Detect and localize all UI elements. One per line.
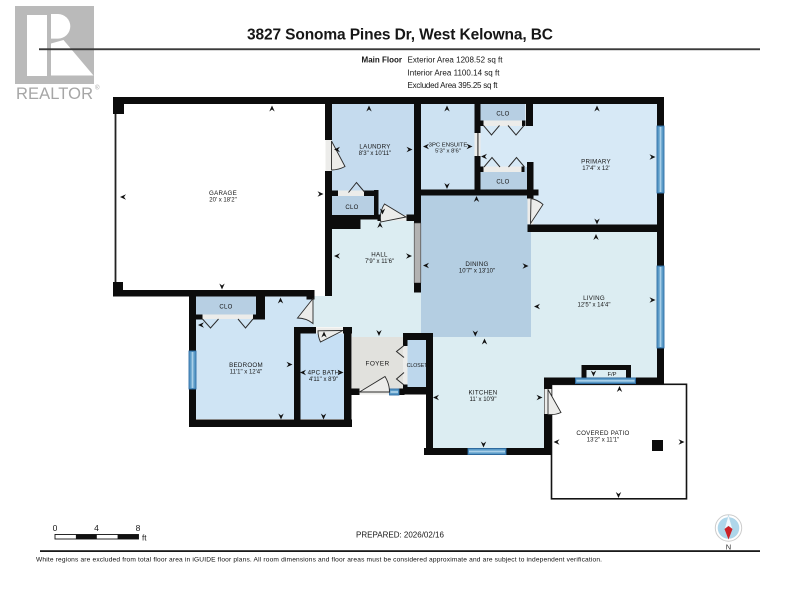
svg-text:13'2" x 11'1": 13'2" x 11'1" — [587, 438, 619, 444]
svg-text:PRIMARY: PRIMARY — [581, 159, 611, 166]
svg-text:4'11" x 8'9": 4'11" x 8'9" — [309, 377, 338, 383]
svg-text:Excluded Area 395.25 sq ft: Excluded Area 395.25 sq ft — [408, 81, 499, 90]
svg-text:BEDROOM: BEDROOM — [229, 362, 263, 369]
svg-text:8'3" x 10'11": 8'3" x 10'11" — [359, 151, 391, 157]
svg-text:11' x 10'9": 11' x 10'9" — [470, 397, 497, 403]
svg-text:4: 4 — [94, 523, 99, 533]
svg-text:5'3" x 8'6": 5'3" x 8'6" — [435, 149, 461, 155]
svg-text:N: N — [726, 543, 731, 552]
svg-text:Interior Area 1100.14 sq ft: Interior Area 1100.14 sq ft — [408, 69, 501, 78]
svg-text:7'9" x 11'6": 7'9" x 11'6" — [365, 259, 394, 265]
svg-text:Exterior Area 1208.52 sq ft: Exterior Area 1208.52 sq ft — [408, 56, 504, 65]
svg-text:CLO: CLO — [345, 205, 358, 211]
svg-text:COVERED PATIO: COVERED PATIO — [576, 430, 629, 437]
svg-text:®: ® — [95, 85, 100, 92]
svg-text:LAUNDRY: LAUNDRY — [359, 144, 390, 151]
svg-text:FOYER: FOYER — [366, 360, 390, 367]
svg-text:17'4" x 12': 17'4" x 12' — [582, 166, 609, 172]
svg-text:12'5" x 14'4": 12'5" x 14'4" — [578, 302, 611, 308]
svg-text:CLOSET: CLOSET — [407, 363, 429, 369]
svg-text:HALL: HALL — [371, 252, 388, 259]
svg-text:KITCHEN: KITCHEN — [469, 390, 498, 397]
svg-text:F/P: F/P — [607, 372, 616, 378]
svg-text:REALTOR: REALTOR — [16, 85, 94, 103]
svg-text:CLO: CLO — [496, 111, 509, 117]
svg-text:ft: ft — [142, 534, 147, 543]
svg-text:LIVING: LIVING — [583, 295, 605, 302]
svg-text:8: 8 — [136, 523, 141, 533]
svg-text:Main Floor: Main Floor — [362, 56, 402, 65]
svg-text:CLO: CLO — [496, 179, 509, 185]
svg-text:CLO: CLO — [219, 304, 232, 310]
svg-text:GARAGE: GARAGE — [209, 190, 237, 197]
svg-text:3PC ENSUITE: 3PC ENSUITE — [429, 143, 468, 149]
svg-text:White regions are excluded fro: White regions are excluded from total fl… — [36, 557, 602, 564]
svg-text:3827 Sonoma Pines Dr, West Kel: 3827 Sonoma Pines Dr, West Kelowna, BC — [247, 27, 553, 44]
svg-text:PREPARED: 2026/02/16: PREPARED: 2026/02/16 — [356, 531, 444, 540]
svg-text:0: 0 — [53, 523, 58, 533]
svg-text:20' x 18'2": 20' x 18'2" — [209, 197, 236, 203]
svg-text:4PC BATH: 4PC BATH — [308, 370, 340, 377]
svg-text:DINING: DINING — [465, 261, 488, 268]
svg-text:10'7" x 13'10": 10'7" x 13'10" — [459, 268, 495, 274]
svg-text:11'1" x 12'4": 11'1" x 12'4" — [230, 370, 262, 376]
